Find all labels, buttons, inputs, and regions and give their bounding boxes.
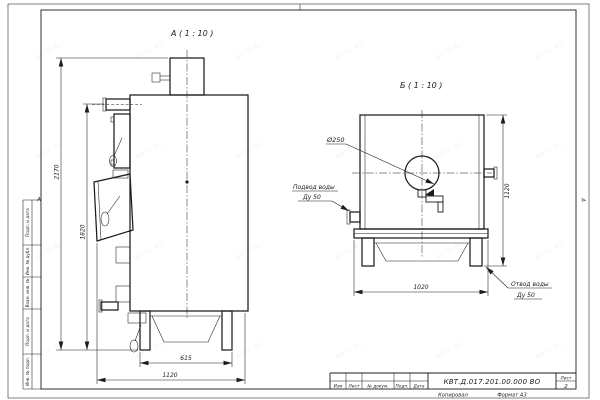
sheet-number: 2 xyxy=(564,384,568,390)
view-b: Б ( 1 : 10 ) xyxy=(292,81,552,299)
title-block: Изм Лист № докум. Подп. Дата КВТ.Д.017.2… xyxy=(330,373,576,399)
document-number: КВТ.Д.017.201.00.000 ВО xyxy=(444,378,541,386)
dim-1120-height: 1120 xyxy=(504,183,511,198)
callout-flue-diameter: Ø250 xyxy=(326,136,434,184)
titleblock-col-doc: № докум. xyxy=(366,384,388,390)
titleblock-col-date: Дата xyxy=(412,384,424,390)
sheet-label: Лист xyxy=(560,376,572,382)
dim-1820: 1820 xyxy=(80,224,87,239)
dim-flue-diameter: Ø250 xyxy=(326,136,345,144)
margin-stamp-label: Подп. и дата xyxy=(25,317,30,346)
outlet-callout-title: Отвод воды xyxy=(511,281,549,288)
format-label: Формат А3 xyxy=(497,393,527,399)
margin-stamp-label: Взам. инв. № xyxy=(25,278,30,307)
margin-stamp-label: Инв. № подл. xyxy=(25,357,30,386)
dim-1020: 1020 xyxy=(413,284,428,291)
drawing-canvas: Подп. и дата Инв. № дубл. Взам. инв. № П… xyxy=(0,0,600,400)
titleblock-col-sign: Подп. xyxy=(395,384,408,390)
drawing-sheet: KVTC.RUKVTC.RUKVTC.RUKVTC.RUKVTC.RUKVTC.… xyxy=(0,0,600,400)
titleblock-col-izm: Изм xyxy=(334,384,343,390)
callout-inlet: Подвод воды Ду 50 xyxy=(292,184,349,211)
margin-stamp-label: Инв. № дубл. xyxy=(25,247,30,276)
copied-label: Копировал xyxy=(438,393,468,399)
margin-stamp-boxes: Подп. и дата Инв. № дубл. Взам. инв. № П… xyxy=(23,200,41,389)
dim-1120-depth: 1120 xyxy=(162,372,177,379)
inlet-callout-title: Подвод воды xyxy=(293,184,335,191)
dim-2170: 2170 xyxy=(54,164,61,179)
titleblock-col-list: Лист xyxy=(348,384,360,390)
zone-marker-left: А xyxy=(36,197,41,203)
dimension-total-height: 2170 xyxy=(54,58,169,350)
inlet-callout-size: Ду 50 xyxy=(302,194,321,201)
callout-outlet: Отвод воды Ду 50 xyxy=(486,267,552,299)
outlet-callout-size: Ду 50 xyxy=(516,292,535,299)
margin-stamp-label: Подп. и дата xyxy=(25,208,30,237)
view-a: А ( 1 : 10 ) xyxy=(54,29,249,384)
zone-marker-right: А xyxy=(580,197,586,202)
dimension-stand-width: 615 xyxy=(140,352,232,367)
view-a-label: А ( 1 : 10 ) xyxy=(170,29,213,38)
dim-615: 615 xyxy=(180,355,192,362)
view-b-label: Б ( 1 : 10 ) xyxy=(400,81,442,90)
